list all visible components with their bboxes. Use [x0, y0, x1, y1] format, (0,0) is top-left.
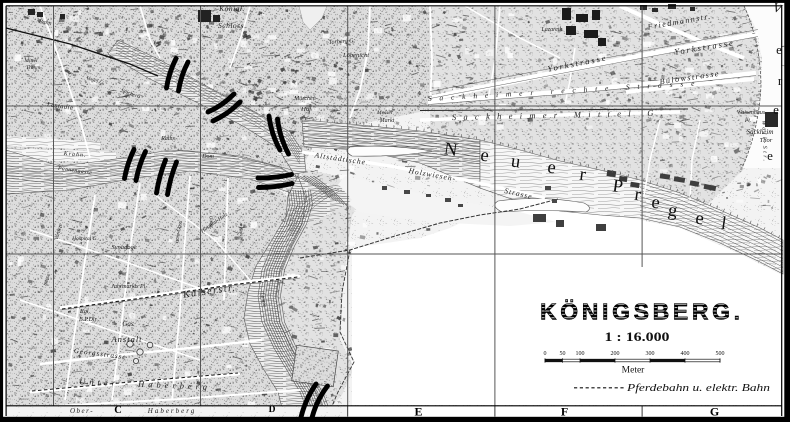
svg-text:100: 100	[576, 351, 585, 357]
svg-text:Mittel: Mittel	[23, 58, 38, 64]
svg-text:400: 400	[681, 351, 690, 357]
svg-text:50: 50	[560, 351, 566, 357]
svg-text:Meter: Meter	[622, 366, 646, 376]
svg-text:Kgl.: Kgl.	[79, 309, 90, 315]
svg-text:Pferdebahn u. elektr. Bahn: Pferdebahn u. elektr. Bahn	[626, 383, 770, 394]
svg-text:200: 200	[611, 351, 620, 357]
svg-text:Pl.: Pl.	[744, 118, 751, 124]
svg-text:e: e	[773, 102, 779, 117]
svg-text:Waisenhaus: Waisenhaus	[737, 110, 766, 116]
svg-text:Markt: Markt	[379, 118, 395, 124]
svg-text:Ober-: Ober-	[70, 407, 94, 415]
svg-text:G: G	[710, 405, 719, 419]
svg-text:Jahrmarkts Pl.: Jahrmarkts Pl.	[111, 284, 147, 290]
svg-text:Hospital G.: Hospital G.	[71, 236, 98, 242]
svg-text:Dom: Dom	[201, 154, 214, 160]
svg-text:Anstalt: Anstalt	[110, 334, 142, 344]
svg-text:Lazareth: Lazareth	[540, 27, 562, 33]
svg-text:e: e	[767, 148, 773, 163]
svg-text:Löbenicht: Löbenicht	[342, 52, 369, 59]
svg-text:Messer: Messer	[376, 110, 394, 116]
svg-text:Synagoge: Synagoge	[111, 244, 136, 251]
svg-text:Mürchen-: Mürchen-	[293, 96, 317, 102]
svg-text:Haberberg: Haberberg	[147, 407, 196, 415]
svg-text:300: 300	[646, 351, 655, 357]
svg-text:E: E	[414, 405, 422, 419]
svg-text:Schloss: Schloss	[218, 21, 244, 30]
svg-text:Raths: Raths	[160, 136, 175, 142]
svg-text:N: N	[443, 139, 459, 161]
svg-text:0: 0	[544, 351, 547, 357]
svg-text:500: 500	[716, 351, 725, 357]
svg-text:C: C	[114, 405, 122, 416]
svg-text:1 : 16.000: 1 : 16.000	[605, 329, 670, 344]
svg-text:F: F	[561, 405, 568, 419]
svg-text:D: D	[269, 405, 276, 415]
svg-text:Gas: Gas	[122, 320, 134, 328]
svg-text:B.P.Dir: B.P.Dir	[79, 317, 98, 323]
svg-text:Trahm: Trahm	[26, 65, 40, 71]
svg-text:Sackheim: Sackheim	[747, 128, 774, 136]
svg-text:Hof: Hof	[300, 106, 312, 113]
